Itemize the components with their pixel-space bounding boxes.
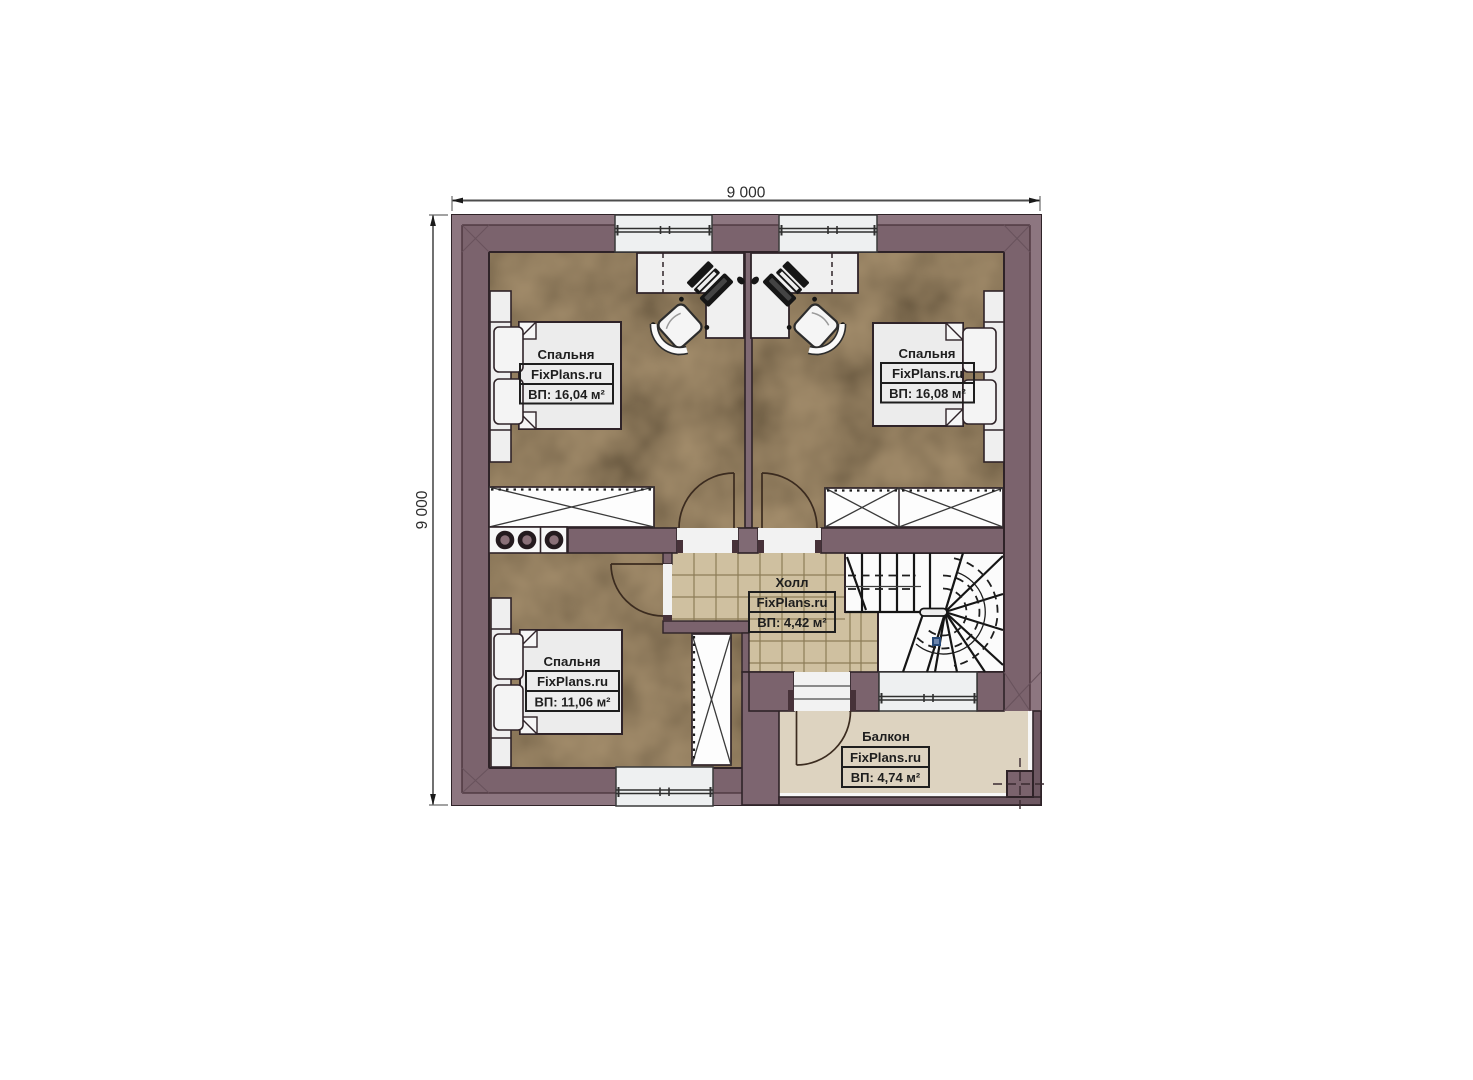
svg-text:Спальня: Спальня [544,654,601,669]
svg-text:ВП: 4,74 м²: ВП: 4,74 м² [851,770,921,785]
svg-text:ВП: 11,06 м²: ВП: 11,06 м² [534,694,611,709]
svg-text:FixPlans.ru: FixPlans.ru [531,367,602,382]
svg-text:FixPlans.ru: FixPlans.ru [756,595,827,610]
svg-text:ВП: 16,08 м²: ВП: 16,08 м² [889,386,966,401]
svg-text:ВП: 4,42 м²: ВП: 4,42 м² [757,615,827,630]
svg-text:9 000: 9 000 [414,490,431,529]
svg-text:Спальня: Спальня [899,346,956,361]
svg-text:FixPlans.ru: FixPlans.ru [537,674,608,689]
svg-text:FixPlans.ru: FixPlans.ru [850,750,921,765]
svg-text:FixPlans.ru: FixPlans.ru [892,366,963,381]
svg-text:Холл: Холл [775,575,808,590]
svg-text:ВП: 16,04 м²: ВП: 16,04 м² [528,387,605,402]
svg-text:Балкон: Балкон [862,729,910,744]
svg-text:9 000: 9 000 [727,185,766,202]
svg-text:Спальня: Спальня [538,347,595,362]
